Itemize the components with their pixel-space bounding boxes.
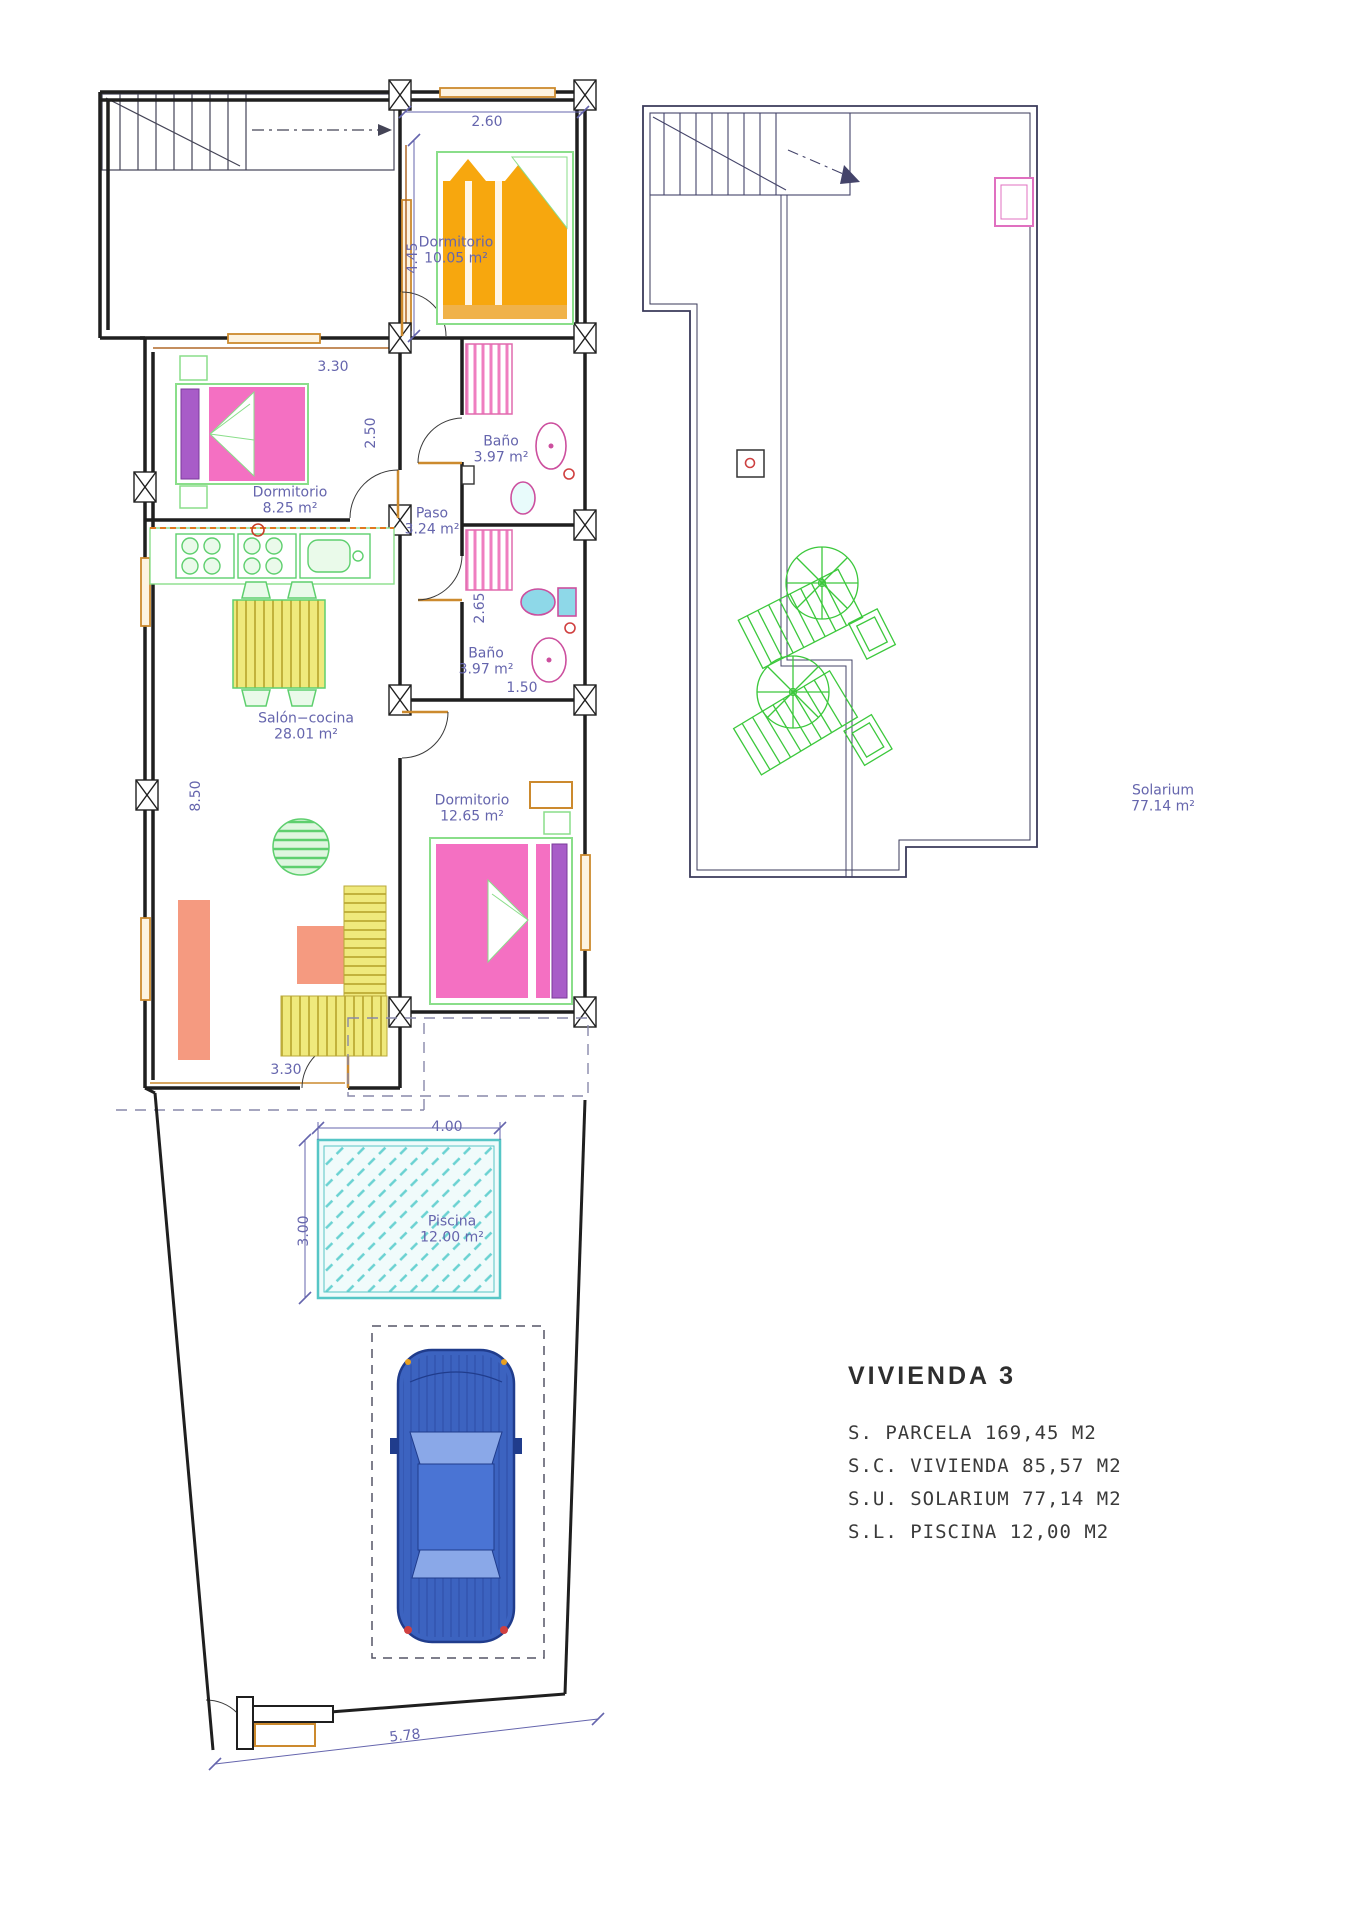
summary-line-vivienda: S.C. VIVIENDA 85,57 M2	[848, 1450, 1122, 1483]
staircase	[102, 94, 394, 170]
room-area: 3.97 m²	[474, 450, 529, 466]
roof-skylight	[995, 178, 1033, 226]
car	[372, 1326, 544, 1658]
beanbag	[273, 819, 329, 875]
room-name: Dormitorio	[435, 792, 510, 808]
dimension-3-30-window: 3.30	[317, 359, 348, 375]
dining-table	[233, 582, 325, 706]
room-label-piscina: Piscina 12.00 m²	[420, 1214, 484, 1245]
dimension-2-50: 2.50	[363, 417, 379, 448]
room-label-dormitorio2: Dormitorio 8.25 m²	[253, 485, 328, 516]
dimension-4-45: 4.45	[405, 242, 421, 273]
dimension-2-60: 2.60	[471, 114, 502, 130]
rug-tall	[178, 900, 210, 1060]
room-label-bano2: Baño 3.97 m²	[459, 646, 514, 677]
sofa-bottom	[281, 996, 387, 1056]
room-name: Dormitorio	[419, 234, 494, 250]
summary-line-piscina: S.L. PISCINA 12,00 M2	[848, 1516, 1122, 1549]
roof-drain	[737, 450, 764, 477]
room-label-solarium: Solarium 77.14 m²	[1131, 783, 1195, 814]
roof-staircase	[650, 113, 860, 195]
room-name: Baño	[468, 645, 504, 661]
roof-plan	[643, 106, 1037, 877]
room-name: Solarium	[1132, 782, 1194, 798]
dimension-5-78: 5.78	[389, 1726, 422, 1745]
room-label-salon: Salón−cocina 28.01 m²	[258, 711, 354, 742]
summary-line-solarium: S.U. SOLARIUM 77,14 M2	[848, 1483, 1122, 1516]
room-area: 77.14 m²	[1131, 799, 1195, 815]
room-name: Paso	[416, 505, 448, 521]
dimension-4-00: 4.00	[431, 1119, 462, 1135]
kitchen-counter	[150, 524, 394, 584]
floor-plan-canvas	[0, 0, 1357, 1920]
room-label-paso: Paso 3.24 m²	[405, 506, 460, 537]
room-label-dormitorio3: Dormitorio 12.65 m²	[435, 793, 510, 824]
summary-block: VIVIENDA 3 S. PARCELA 169,45 M2 S.C. VIV…	[848, 1362, 1122, 1549]
bathroom-fixtures	[462, 344, 576, 682]
dimension-2-65: 2.65	[472, 592, 488, 623]
room-name: Dormitorio	[253, 484, 328, 500]
room-area: 3.24 m²	[405, 522, 460, 538]
room-label-bano1: Baño 3.97 m²	[474, 434, 529, 465]
room-area: 12.65 m²	[435, 809, 510, 825]
room-label-dormitorio1: Dormitorio 10.05 m²	[419, 235, 494, 266]
ground-floor-plan	[100, 80, 604, 1770]
room-area: 8.25 m²	[253, 501, 328, 517]
dimension-8-50: 8.50	[188, 780, 204, 811]
room-name: Baño	[483, 433, 519, 449]
summary-title: VIVIENDA 3	[848, 1362, 1122, 1391]
room-area: 3.97 m²	[459, 662, 514, 678]
room-name: Salón−cocina	[258, 710, 354, 726]
summary-line-parcela: S. PARCELA 169,45 M2	[848, 1417, 1122, 1450]
room-area: 12.00 m²	[420, 1230, 484, 1246]
room-area: 28.01 m²	[258, 727, 354, 743]
dimension-1-50: 1.50	[506, 680, 537, 696]
room-area: 10.05 m²	[419, 251, 494, 267]
floor-plan-page: Dormitorio 10.05 m² Dormitorio 8.25 m² B…	[0, 0, 1357, 1920]
room-name: Piscina	[428, 1213, 476, 1229]
dimension-3-30-door: 3.30	[270, 1062, 301, 1078]
dimension-3-00: 3.00	[296, 1215, 312, 1246]
